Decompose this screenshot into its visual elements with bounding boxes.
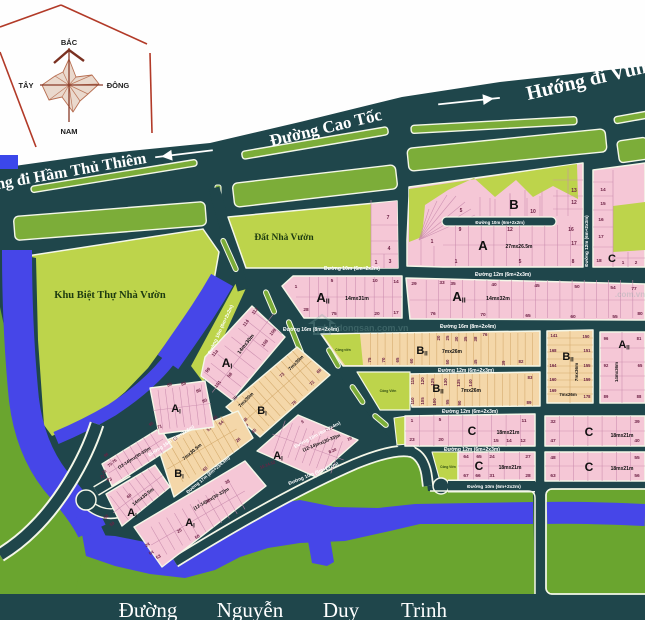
svg-text:83: 83	[528, 375, 533, 380]
svg-text:82: 82	[519, 359, 524, 364]
svg-text:39: 39	[634, 419, 640, 425]
svg-text:ĐÔNG: ĐÔNG	[107, 81, 130, 90]
svg-text:50: 50	[445, 359, 450, 364]
svg-text:Đất Nhà Vườn: Đất Nhà Vườn	[254, 232, 314, 243]
svg-text:1: 1	[411, 418, 414, 424]
svg-text:125: 125	[430, 378, 435, 386]
svg-text:11: 11	[521, 418, 526, 424]
svg-text:45: 45	[534, 283, 540, 289]
svg-text:C: C	[585, 425, 594, 439]
svg-text:76: 76	[430, 311, 436, 317]
svg-text:14mx32m: 14mx32m	[486, 296, 510, 302]
svg-text:40: 40	[634, 438, 640, 444]
svg-text:B: B	[509, 197, 518, 212]
svg-text:Đường 12m (6m+2x3m): Đường 12m (6m+2x3m)	[475, 272, 531, 278]
svg-text:12: 12	[520, 438, 526, 444]
svg-text:12: 12	[507, 227, 513, 233]
svg-text:C: C	[585, 460, 594, 474]
svg-text:Khu Biệt Thự Nhà Vườn: Khu Biệt Thự Nhà Vườn	[54, 290, 166, 301]
svg-text:14: 14	[600, 187, 606, 193]
svg-text:A: A	[478, 238, 488, 253]
svg-text:70: 70	[381, 357, 386, 362]
svg-text:130: 130	[443, 378, 448, 386]
svg-text:7mx26m: 7mx26m	[559, 392, 577, 397]
svg-text:33: 33	[439, 280, 445, 286]
svg-text:5: 5	[331, 278, 334, 284]
svg-text:Đường 10m (6m+2x2m): Đường 10m (6m+2x2m)	[475, 220, 525, 225]
svg-text:17: 17	[393, 310, 399, 316]
svg-text:88: 88	[637, 394, 642, 399]
svg-text:Đường 10m (6m+2x2m): Đường 10m (6m+2x2m)	[324, 266, 380, 272]
svg-text:Đường 12m (6m+2x3m): Đường 12m (6m+2x3m)	[584, 215, 589, 267]
svg-text:5: 5	[439, 417, 442, 423]
svg-text:1: 1	[622, 260, 625, 265]
svg-text:31: 31	[489, 473, 495, 479]
svg-text:3: 3	[389, 259, 392, 265]
svg-text:110: 110	[410, 397, 415, 405]
svg-text:16: 16	[568, 227, 574, 233]
svg-text:66: 66	[475, 473, 481, 479]
svg-text:14mx31m: 14mx31m	[345, 296, 369, 302]
svg-text:7: 7	[387, 215, 390, 221]
svg-text:24: 24	[489, 454, 495, 460]
svg-text:55: 55	[634, 455, 640, 461]
svg-text:168: 168	[550, 348, 558, 353]
svg-text:NAM: NAM	[60, 127, 77, 136]
svg-text:65: 65	[476, 454, 482, 460]
svg-text:.com.vn: .com.vn	[615, 290, 645, 299]
svg-text:BẮC: BẮC	[61, 38, 78, 47]
svg-text:90: 90	[457, 400, 462, 405]
svg-text:30: 30	[454, 336, 459, 341]
svg-text:Nguyễn: Nguyễn	[217, 598, 284, 620]
svg-text:Công viên: Công viên	[335, 348, 350, 352]
svg-text:20: 20	[436, 335, 441, 340]
svg-text:60: 60	[409, 358, 414, 363]
svg-text:100: 100	[432, 398, 437, 406]
svg-text:105: 105	[420, 397, 425, 405]
svg-text:15: 15	[493, 438, 499, 444]
svg-text:92: 92	[604, 363, 609, 368]
svg-text:Đường 16m (8m+2x4m): Đường 16m (8m+2x4m)	[440, 324, 496, 330]
svg-text:47: 47	[550, 438, 556, 444]
svg-text:29: 29	[411, 281, 417, 287]
svg-text:C: C	[475, 459, 484, 473]
svg-text:27: 27	[525, 454, 531, 460]
svg-text:18mx21m: 18mx21m	[497, 430, 520, 436]
svg-text:15: 15	[600, 201, 606, 207]
svg-text:63: 63	[550, 473, 556, 479]
svg-text:17: 17	[571, 241, 577, 247]
svg-text:25: 25	[445, 335, 450, 340]
svg-text:81: 81	[637, 336, 642, 341]
svg-text:9: 9	[459, 227, 462, 233]
svg-text:7mx26m: 7mx26m	[442, 349, 463, 355]
svg-text:10: 10	[530, 209, 536, 215]
svg-text:65: 65	[638, 363, 643, 368]
svg-text:76: 76	[483, 332, 488, 337]
svg-text:7mx26m: 7mx26m	[461, 388, 482, 394]
svg-text:18: 18	[596, 258, 602, 264]
svg-text:140: 140	[468, 379, 473, 387]
svg-text:135: 135	[456, 379, 461, 387]
svg-text:120: 120	[420, 377, 425, 385]
svg-text:12: 12	[571, 200, 577, 206]
svg-text:67: 67	[463, 473, 469, 479]
svg-text:38: 38	[473, 336, 478, 341]
svg-text:48: 48	[550, 455, 556, 461]
svg-text:178: 178	[584, 394, 592, 399]
svg-text:160: 160	[550, 377, 558, 382]
svg-text:35: 35	[463, 336, 468, 341]
svg-text:23: 23	[409, 437, 415, 443]
svg-text:95: 95	[445, 399, 450, 404]
svg-text:14mx36m: 14mx36m	[614, 362, 619, 382]
svg-text:18mx21m: 18mx21m	[611, 466, 634, 472]
svg-text:20: 20	[438, 437, 444, 443]
svg-text:28: 28	[525, 473, 531, 479]
svg-text:18mx21m: 18mx21m	[611, 433, 634, 439]
svg-text:164: 164	[550, 363, 558, 368]
svg-text:96: 96	[604, 336, 609, 341]
svg-text:2: 2	[635, 260, 638, 265]
svg-text:27mx26.5m: 27mx26.5m	[506, 244, 534, 250]
svg-text:Công Viên: Công Viên	[380, 389, 397, 393]
svg-text:14: 14	[506, 438, 512, 444]
svg-text:169: 169	[550, 388, 558, 393]
svg-text:14: 14	[393, 279, 399, 285]
svg-text:40: 40	[491, 282, 497, 288]
svg-text:TÂY: TÂY	[19, 81, 34, 90]
svg-text:151: 151	[584, 348, 592, 353]
svg-text:60: 60	[570, 314, 576, 320]
svg-text:55: 55	[612, 314, 618, 320]
svg-text:Duy: Duy	[323, 598, 360, 620]
svg-text:56: 56	[634, 473, 640, 479]
svg-text:C: C	[468, 424, 477, 438]
svg-text:65: 65	[525, 313, 531, 319]
svg-text:18mx21m: 18mx21m	[499, 465, 522, 471]
svg-text:batdongsan.com.vn: batdongsan.com.vn	[323, 323, 408, 333]
svg-text:5: 5	[460, 208, 463, 214]
svg-text:Đường 10m (6m+2x2m): Đường 10m (6m+2x2m)	[467, 484, 521, 490]
svg-text:35: 35	[450, 281, 456, 287]
svg-text:7mx36m: 7mx36m	[574, 363, 579, 381]
svg-text:28: 28	[303, 307, 309, 313]
svg-text:75: 75	[331, 311, 337, 317]
svg-text:1: 1	[295, 284, 298, 290]
svg-text:45: 45	[473, 359, 478, 364]
svg-text:10: 10	[372, 278, 378, 284]
svg-text:141: 141	[551, 333, 559, 338]
svg-text:70: 70	[480, 312, 486, 318]
svg-text:5: 5	[519, 259, 522, 265]
svg-text:159: 159	[584, 377, 592, 382]
svg-text:17: 17	[598, 234, 604, 240]
svg-text:115: 115	[410, 377, 415, 385]
svg-text:Đường: Đường	[119, 598, 178, 620]
svg-text:Công Viên: Công Viên	[440, 465, 456, 469]
svg-text:1: 1	[431, 239, 434, 245]
svg-text:4: 4	[388, 246, 391, 252]
svg-text:65: 65	[395, 357, 400, 362]
svg-text:75: 75	[367, 357, 372, 362]
svg-text:32: 32	[550, 419, 556, 425]
svg-text:Trinh: Trinh	[401, 598, 447, 620]
svg-text:1: 1	[455, 259, 458, 265]
svg-text:155: 155	[584, 363, 592, 368]
svg-text:89: 89	[527, 400, 532, 405]
svg-text:150: 150	[583, 334, 591, 339]
svg-text:80: 80	[637, 311, 643, 317]
svg-text:39: 39	[501, 360, 506, 365]
svg-text:50: 50	[574, 284, 580, 290]
svg-text:89: 89	[604, 394, 609, 399]
svg-text:16: 16	[598, 217, 604, 223]
svg-text:20: 20	[374, 311, 380, 317]
svg-text:8: 8	[572, 259, 575, 265]
svg-text:64: 64	[463, 454, 469, 460]
svg-text:C: C	[608, 253, 616, 265]
svg-text:13: 13	[571, 188, 577, 194]
svg-text:Đường 12m (6m+2x3m): Đường 12m (6m+2x3m)	[438, 368, 494, 374]
